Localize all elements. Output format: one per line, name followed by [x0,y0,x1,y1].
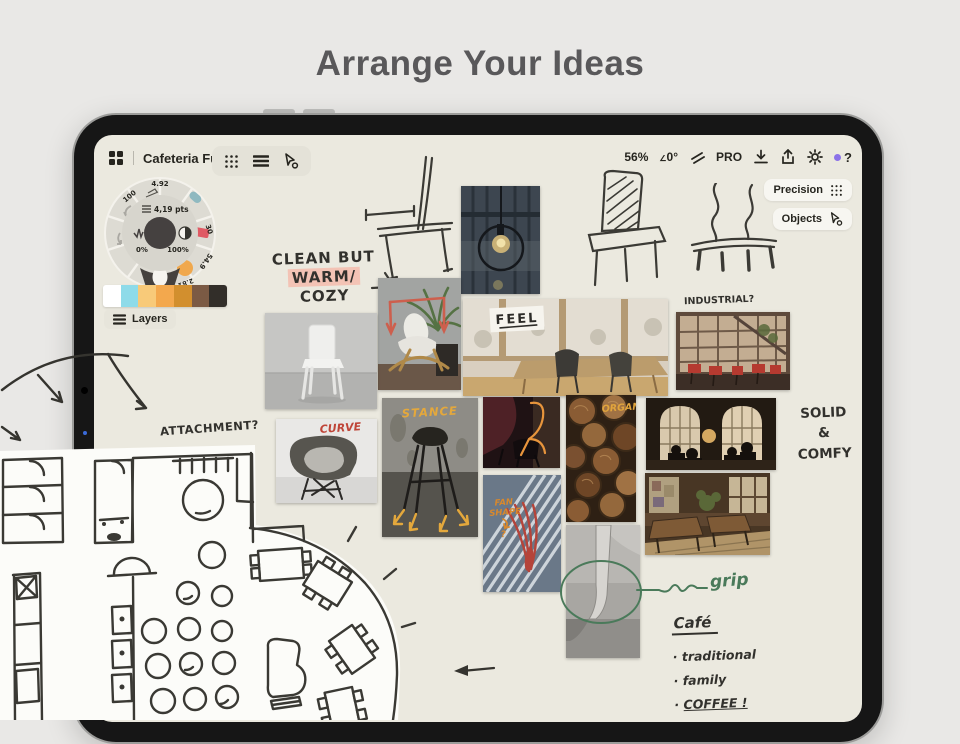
tilt-button[interactable] [689,151,705,164]
tool-wheel[interactable]: 4.92 100 30 54.9 2.81 4,19 pts 0% 100% 4… [98,171,222,295]
note-fan: ? [500,530,506,540]
note-attachment[interactable]: ATTACHMENT? [160,418,260,439]
camera-dot [80,452,89,461]
note-line: & [792,422,857,444]
photo-cafe-interior[interactable] [645,473,770,555]
palette-swatch[interactable] [121,285,139,307]
page-title: Arrange Your Ideas [0,44,960,84]
cafe-notes[interactable]: Café · traditional · family · COFFEE ! [671,612,758,717]
pen-circle-icon [283,153,299,169]
help-button[interactable]: ? [834,150,852,165]
import-button[interactable] [753,149,769,165]
share-icon [780,149,796,165]
layers-label: Layers [132,313,167,325]
photo-cafe-feel[interactable]: FEEL [463,299,668,396]
export-button[interactable] [780,149,796,165]
photo-white-chair[interactable] [265,313,377,409]
select-objects-button[interactable] [283,153,299,169]
note-clean-warm-cozy[interactable]: CLEAN BUT WARM/ COZY [263,247,385,307]
note-grip[interactable]: grip [709,570,749,593]
note-line: SOLID [791,402,856,424]
zoom-level[interactable]: 56% [624,150,648,164]
note-line: COZY [264,284,385,307]
note-solid-comfy[interactable]: SOLID & COMFY [791,402,857,465]
photo-organic-wood[interactable]: ORGANIC [566,395,636,522]
cafe-list-item: · family [673,666,757,693]
app-menu-icon[interactable] [108,150,124,166]
chair-sketch-hatched[interactable] [583,167,669,293]
palette-swatch[interactable] [103,285,121,307]
drawing-canvas[interactable]: Cafeteria Furni... 56% ∠0° [94,135,862,722]
layers-button[interactable]: Layers [104,309,176,329]
note-stance: STANCE [401,404,458,421]
note-organic: ORGANIC [601,401,636,415]
hamburger-icon [113,314,126,325]
wheel-top-value: 4.92 [151,180,168,188]
settings-button[interactable] [807,149,823,165]
grid-2x2-icon [108,150,124,166]
color-preview[interactable] [144,217,176,249]
gear-icon [807,149,823,165]
palette-swatch[interactable] [192,285,210,307]
objects-panel-button[interactable]: Objects [773,208,852,230]
arrow-left-sketch[interactable] [452,662,496,680]
cafe-title: Café [671,613,718,636]
photo-curve-chair[interactable]: CURVE [276,419,377,503]
indicator-dot [83,431,87,435]
note-industrial[interactable]: INDUSTRIAL? [684,294,755,308]
cafe-list-item: · traditional [672,643,756,670]
stool-sketch-wavy[interactable] [686,183,782,273]
download-icon [753,149,769,165]
opacity-max: 100% [167,246,189,254]
rotation-angle[interactable]: ∠0° [659,150,678,164]
photo-stance-stool[interactable]: STANCE [382,398,478,537]
palette-swatch[interactable] [156,285,174,307]
note-line: COMFY [792,442,857,464]
cafe-list-item: · COFFEE ! [674,690,758,717]
palette-swatch[interactable] [209,285,227,307]
objects-label: Objects [782,213,822,225]
opacity-min: 0% [136,246,148,254]
stroke-width-value: 4,19 pts [154,205,189,214]
camera-dot [81,387,88,394]
photo-pendant-lamp[interactable] [461,186,540,294]
angle-icon: ∠ [659,154,666,163]
divider [133,151,134,165]
notification-dot-icon [834,154,841,161]
note-line-highlighted: WARM/ [287,266,360,287]
grid-dots-icon [224,154,239,169]
color-palette [103,285,227,307]
photo-shell-chair-plant[interactable] [378,278,461,390]
layers-rows-button[interactable] [253,154,269,168]
palette-swatch[interactable] [174,285,192,307]
photo-arched-cafe[interactable] [646,398,776,470]
slashes-icon [689,151,705,164]
rows-icon [253,154,269,168]
camera-dot [82,472,88,478]
toolbar-right: 56% ∠0° PRO [624,149,852,165]
toolbar-pill [212,146,311,176]
photo-industrial-cafe[interactable] [676,312,790,390]
marketing-screenshot: { "page": { "title": "Arrange Your Ideas… [0,0,960,720]
pro-badge[interactable]: PRO [716,150,742,164]
photo-chair-outline[interactable] [483,397,560,468]
palette-swatch[interactable] [138,285,156,307]
grid-dots-button[interactable] [224,154,239,169]
pen-circle-icon [829,212,843,226]
grid-dots-icon [830,184,843,197]
